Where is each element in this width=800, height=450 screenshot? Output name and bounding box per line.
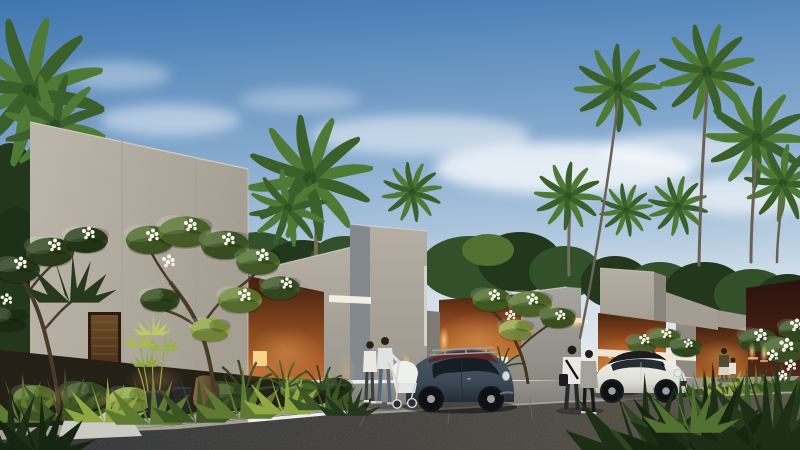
door-handle (467, 378, 471, 380)
woman-dark-top (719, 355, 729, 367)
side-mirror (662, 364, 665, 367)
stroller-wheel (408, 399, 417, 408)
woman-skirt (718, 367, 730, 375)
stroller-wheel (393, 400, 401, 408)
child-white-dress (729, 363, 736, 374)
headlight (674, 369, 682, 376)
tower-corner-slit (424, 266, 427, 346)
scene-canvas (0, 0, 800, 450)
villa-rendering-scene (0, 0, 800, 450)
headlight (503, 372, 510, 381)
